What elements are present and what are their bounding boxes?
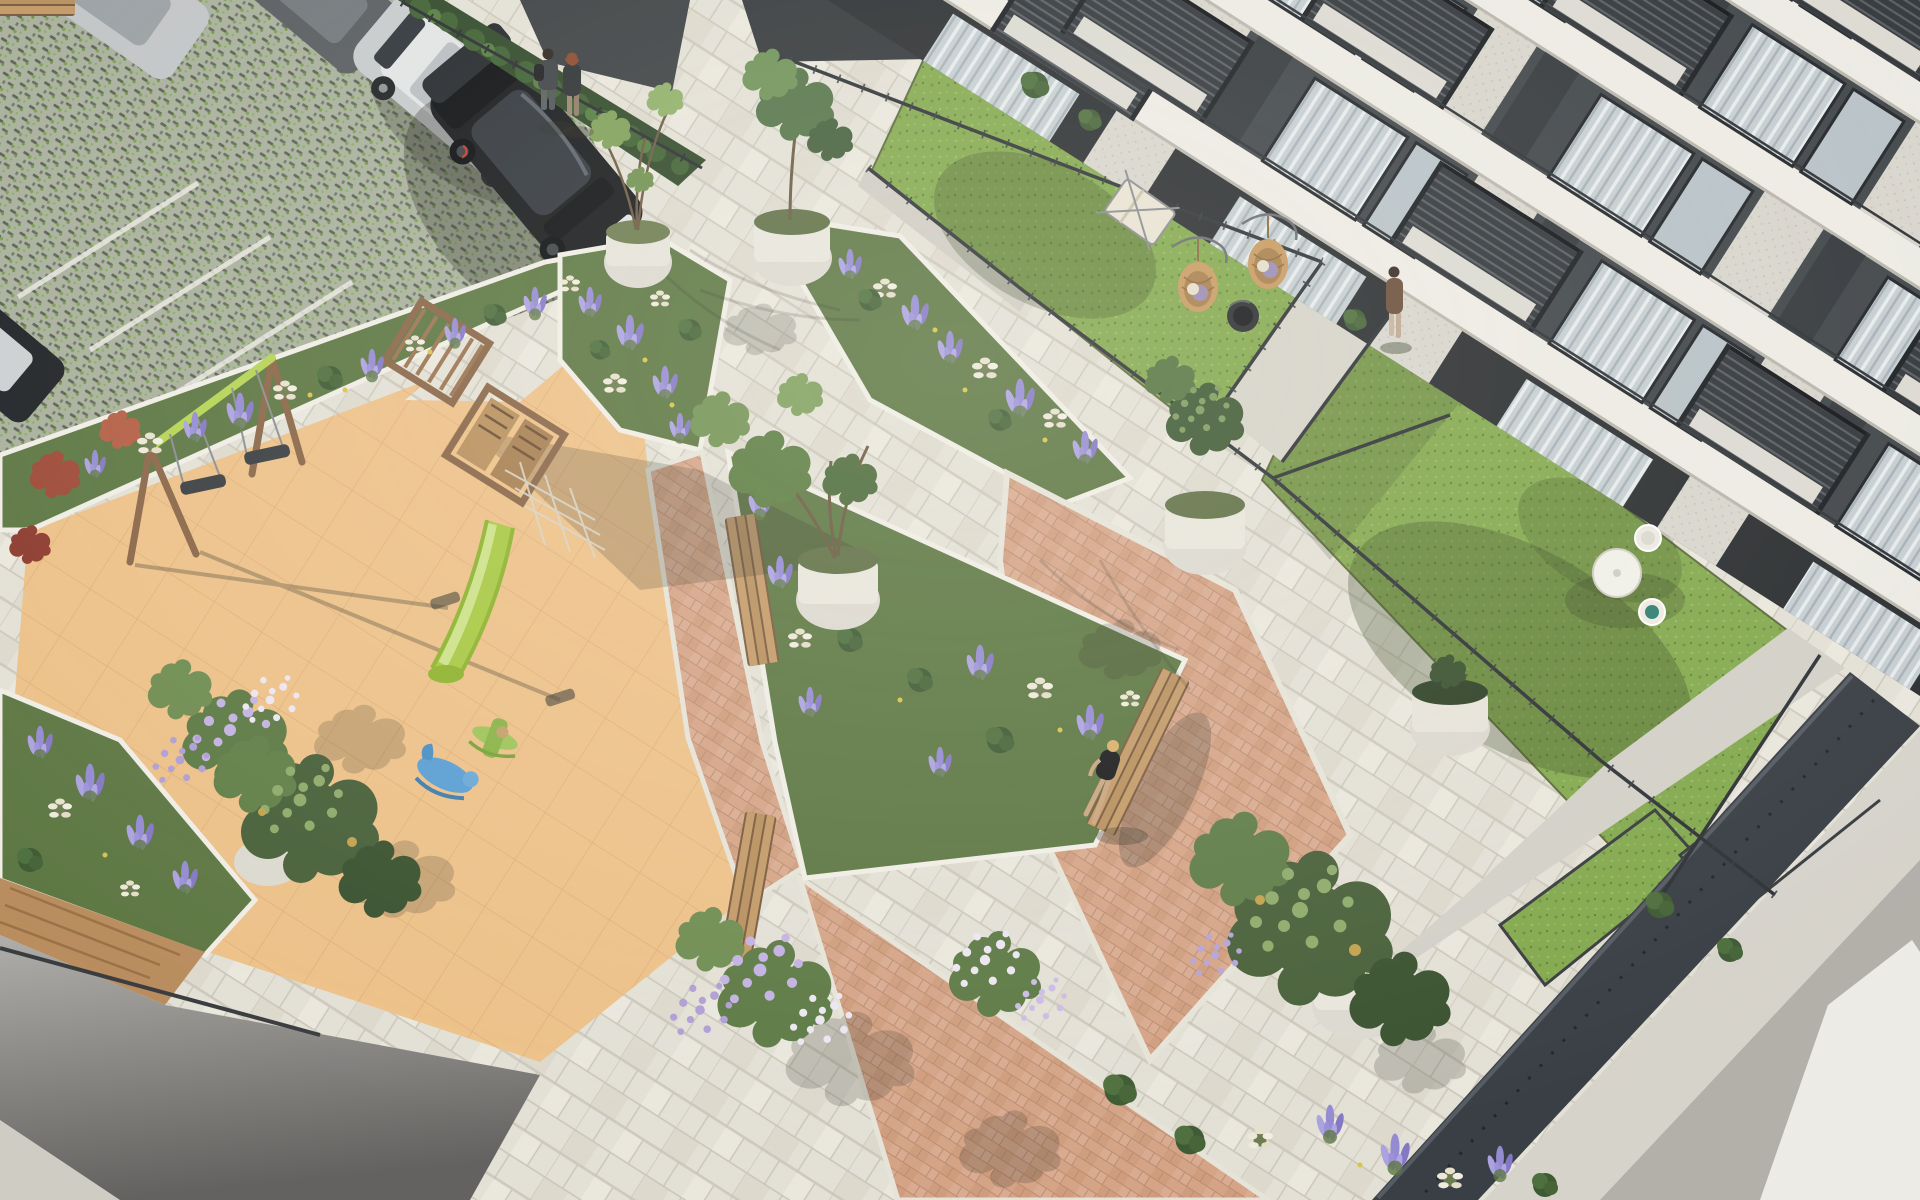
sunlight-overlay	[0, 0, 1920, 1200]
courtyard-render	[0, 0, 1920, 1200]
